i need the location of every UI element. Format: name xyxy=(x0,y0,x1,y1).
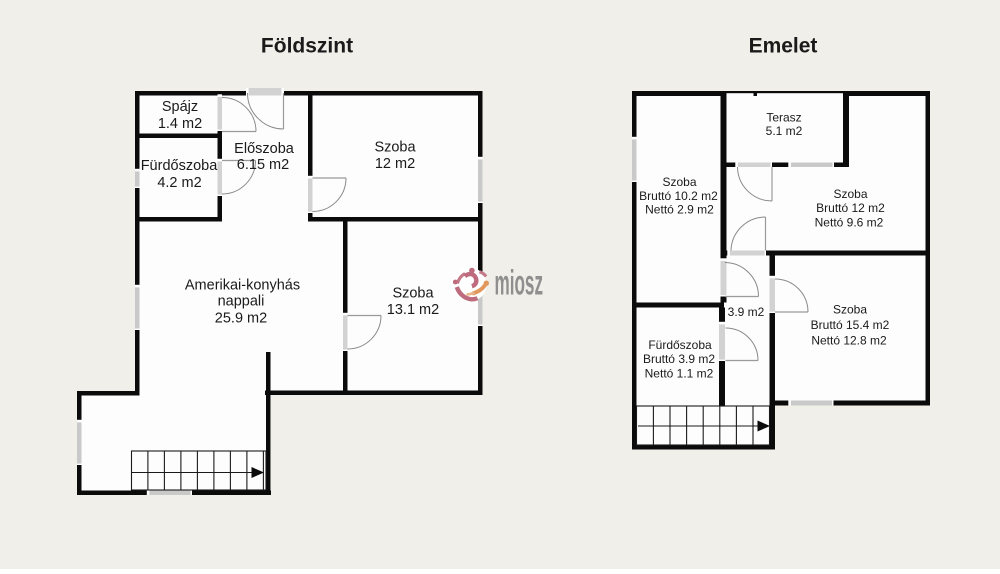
svg-text:6.15 m2: 6.15 m2 xyxy=(237,157,289,173)
svg-text:Terasz: Terasz xyxy=(766,110,801,124)
svg-text:Szoba: Szoba xyxy=(392,286,434,302)
svg-text:Szoba: Szoba xyxy=(662,175,696,189)
svg-text:Földszint: Földszint xyxy=(261,35,353,58)
svg-text:miosz: miosz xyxy=(495,264,544,303)
svg-text:Bruttó 3.9 m2: Bruttó 3.9 m2 xyxy=(643,352,715,366)
svg-text:5.1 m2: 5.1 m2 xyxy=(766,124,803,138)
svg-text:Szoba: Szoba xyxy=(833,187,867,201)
svg-text:Nettó 9.6 m2: Nettó 9.6 m2 xyxy=(815,215,884,229)
svg-text:25.9 m2: 25.9 m2 xyxy=(215,311,267,327)
svg-text:Bruttó 15.4 m2: Bruttó 15.4 m2 xyxy=(811,318,890,332)
svg-text:12 m2: 12 m2 xyxy=(375,156,415,172)
svg-text:Bruttó 10.2 m2: Bruttó 10.2 m2 xyxy=(639,189,718,203)
svg-text:Spájz: Spájz xyxy=(162,99,198,115)
svg-text:Fürdőszoba: Fürdőszoba xyxy=(141,158,219,174)
svg-text:Bruttó 12 m2: Bruttó 12 m2 xyxy=(816,201,885,215)
svg-text:Fürdőszoba: Fürdőszoba xyxy=(648,338,712,352)
svg-text:13.1 m2: 13.1 m2 xyxy=(387,302,439,318)
svg-text:1.4 m2: 1.4 m2 xyxy=(158,116,202,132)
svg-text:Nettó 2.9 m2: Nettó 2.9 m2 xyxy=(645,203,714,217)
svg-text:Amerikai-konyhás: Amerikai-konyhás xyxy=(185,278,300,294)
svg-text:Emelet: Emelet xyxy=(749,35,818,58)
svg-text:nappali: nappali xyxy=(218,294,265,310)
svg-text:4.2 m2: 4.2 m2 xyxy=(157,175,201,191)
svg-text:Szoba: Szoba xyxy=(833,302,867,316)
svg-text:Előszoba: Előszoba xyxy=(234,141,295,157)
svg-text:3.9 m2: 3.9 m2 xyxy=(728,305,765,319)
svg-text:Szoba: Szoba xyxy=(374,140,416,156)
svg-text:Nettó 12.8 m2: Nettó 12.8 m2 xyxy=(811,333,887,347)
svg-text:Nettó 1.1 m2: Nettó 1.1 m2 xyxy=(645,366,714,380)
